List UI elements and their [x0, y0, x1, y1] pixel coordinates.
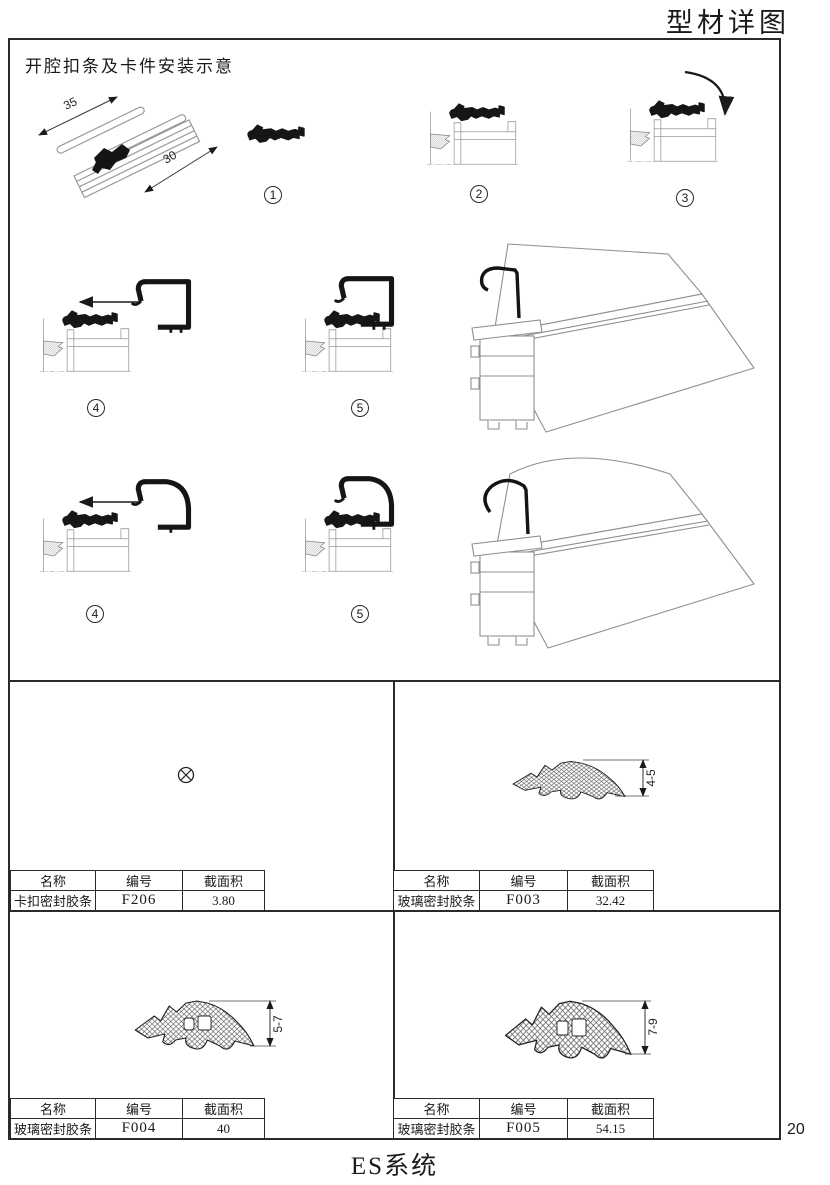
gasket-code: F004 [96, 1119, 183, 1139]
step-number-2: 2 [470, 185, 488, 203]
f005-section-drawing: 7-9 [495, 985, 663, 1077]
gasket-area: 3.80 [183, 891, 265, 911]
step-5-drawing [290, 250, 420, 422]
f004-section-drawing: 5-7 [125, 984, 287, 1069]
step-4-drawing [34, 250, 234, 422]
header-name: 名称 [394, 871, 480, 891]
section-divider [10, 680, 779, 682]
gasket-name: 玻璃密封胶条 [394, 1119, 480, 1139]
step-number-4b: 4 [86, 605, 104, 623]
header-name: 名称 [11, 871, 96, 891]
header-code: 编号 [480, 871, 568, 891]
gasket-name: 卡扣密封胶条 [11, 891, 96, 911]
f206-section-drawing [176, 765, 196, 785]
dim-35-label: 35 [61, 94, 79, 113]
step-5b-drawing [290, 450, 420, 622]
f003-dim-label: 4-5 [644, 769, 658, 787]
step-3-drawing [620, 64, 780, 194]
spec-table-f003: 名称 编号 截面积 玻璃密封胶条 F003 32.42 [393, 870, 654, 911]
header-name: 名称 [394, 1099, 480, 1119]
step-number-5: 5 [351, 399, 369, 417]
step-1-clip-drawing [240, 105, 365, 180]
step-number-4: 4 [87, 399, 105, 417]
page-number: 20 [787, 1121, 805, 1139]
iso-assembled-round-drawing [462, 442, 782, 662]
header-code: 编号 [96, 1099, 183, 1119]
gasket-area: 40 [183, 1119, 265, 1139]
gasket-name: 玻璃密封胶条 [11, 1119, 96, 1139]
header-name: 名称 [11, 1099, 96, 1119]
gasket-area: 54.15 [568, 1119, 654, 1139]
page-title: 型材详图 [666, 1, 790, 40]
step-number-5b: 5 [351, 605, 369, 623]
f004-dim-label: 5-7 [271, 1015, 285, 1033]
illustration-caption: 开腔扣条及卡件安装示意 [25, 52, 234, 77]
gasket-code: F005 [480, 1119, 568, 1139]
header-area: 截面积 [183, 871, 265, 891]
step-number-1: 1 [264, 186, 282, 204]
f003-section-drawing: 4-5 [503, 747, 661, 819]
step-2-drawing [420, 86, 530, 166]
gasket-code: F206 [96, 891, 183, 911]
spec-table-f005: 名称 编号 截面积 玻璃密封胶条 F005 54.15 [393, 1098, 654, 1139]
header-code: 编号 [480, 1099, 568, 1119]
spec-table-f206: 名称 编号 截面积 卡扣密封胶条 F206 3.80 [10, 870, 265, 911]
footer-system-label: ES系统 [8, 1146, 781, 1182]
step-number-3: 3 [676, 189, 694, 207]
iso-strips-drawing: 35 30 [30, 80, 235, 205]
f005-dim-label: 7-9 [646, 1018, 660, 1036]
step-4b-drawing [34, 450, 234, 622]
gasket-name: 玻璃密封胶条 [394, 891, 480, 911]
spec-table-f004: 名称 编号 截面积 玻璃密封胶条 F004 40 [10, 1098, 265, 1139]
drawing-frame: 开腔扣条及卡件安装示意 35 30 1 [8, 38, 781, 1140]
header-code: 编号 [96, 871, 183, 891]
header-area: 截面积 [568, 1099, 654, 1119]
sheet: 型材详图 开腔扣条及卡件安装示意 35 30 [0, 0, 830, 1185]
gasket-area: 32.42 [568, 891, 654, 911]
iso-assembled-flat-drawing [462, 228, 782, 443]
gasket-code: F003 [480, 891, 568, 911]
header-area: 截面积 [568, 871, 654, 891]
header-area: 截面积 [183, 1099, 265, 1119]
